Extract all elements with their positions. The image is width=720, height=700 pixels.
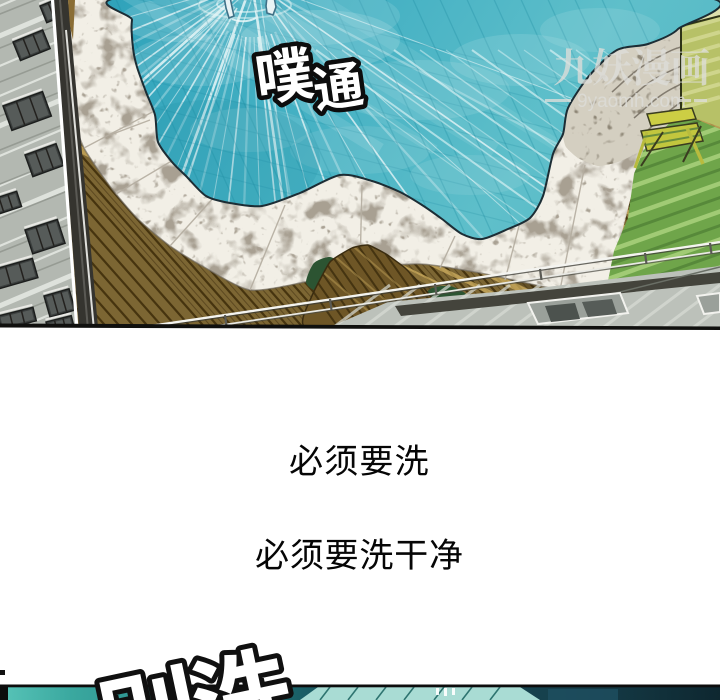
svg-text:9yaomh.com: 9yaomh.com (577, 91, 686, 112)
